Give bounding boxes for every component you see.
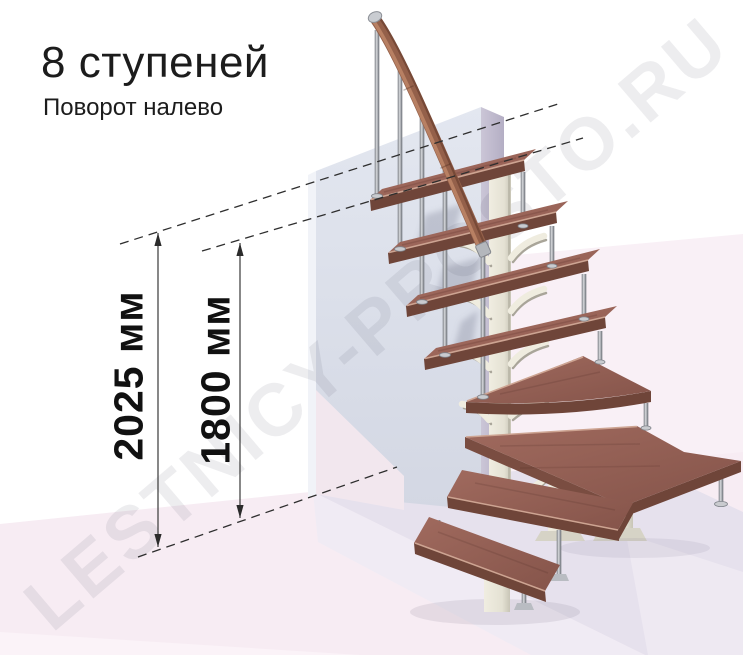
connector-post — [719, 477, 724, 504]
page-subtitle: Поворот налево — [43, 94, 223, 122]
handrail-post — [375, 30, 380, 196]
dimension-label-secondary-height: 1800 мм — [193, 230, 240, 530]
dimension-line-2025 — [154, 233, 161, 547]
tread-leg — [557, 530, 562, 578]
arrowhead-up — [154, 233, 161, 246]
arrowhead-down — [154, 534, 161, 547]
connector-post — [598, 331, 603, 363]
level-line-floor — [138, 467, 397, 557]
handrail-post — [481, 248, 486, 398]
dimension-label-total-height: 2025 мм — [106, 226, 153, 526]
stairs-dimension-diagram: LESTNICY-PROSTO.RU — [0, 0, 743, 655]
tread-1 — [414, 517, 560, 612]
level-line-mid — [202, 138, 583, 251]
handrail — [367, 10, 492, 258]
connector-post — [582, 274, 587, 320]
connector-post — [644, 403, 649, 429]
handrail-post — [398, 62, 403, 250]
handrail-post — [420, 108, 425, 303]
page-title: 8 ступеней — [41, 38, 269, 88]
